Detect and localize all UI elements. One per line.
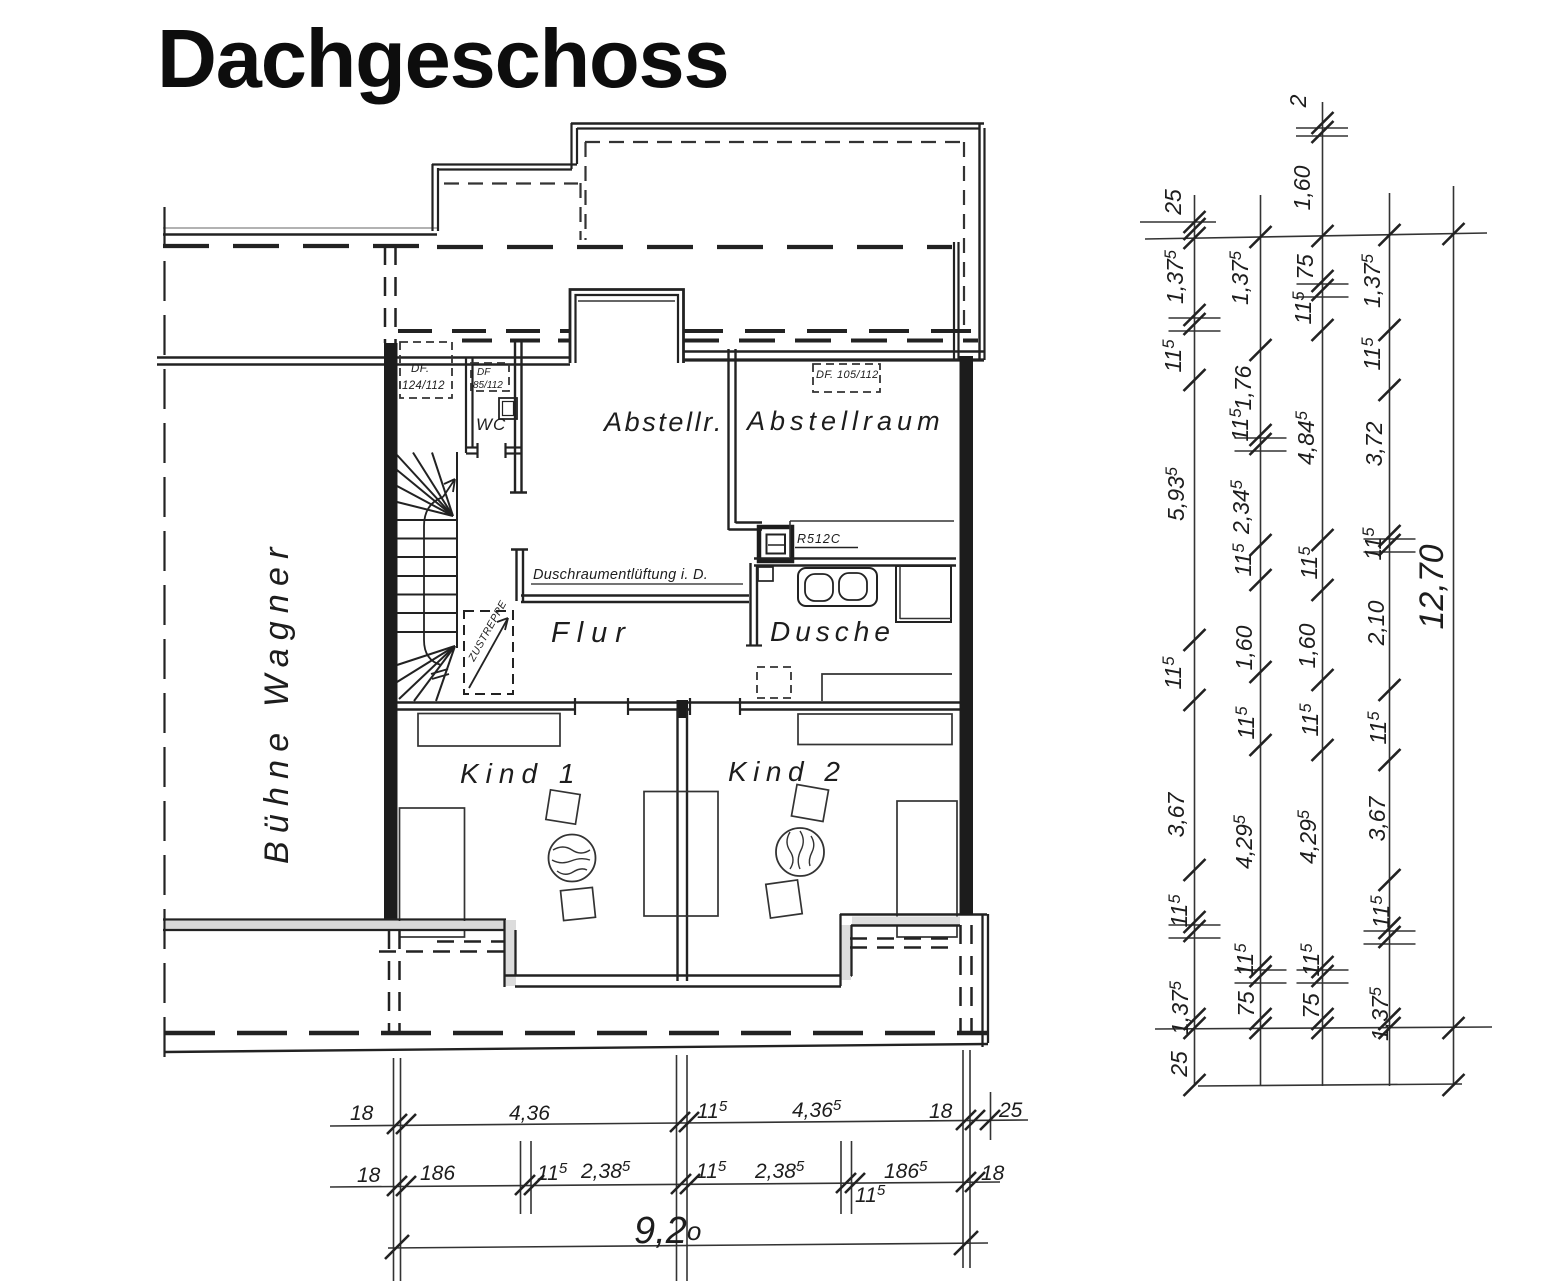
svg-text:Dachgeschoss: Dachgeschoss [157, 12, 728, 105]
svg-text:115: 115 [1165, 894, 1192, 928]
svg-text:115: 115 [537, 1160, 568, 1185]
svg-text:115: 115 [1358, 337, 1385, 371]
svg-text:75: 75 [1233, 991, 1259, 1017]
svg-text:2,385: 2,385 [754, 1158, 805, 1183]
svg-text:Abstellraum: Abstellraum [745, 406, 945, 436]
svg-text:18: 18 [350, 1102, 374, 1125]
svg-text:2,10: 2,10 [1363, 600, 1389, 646]
svg-text:4,845: 4,845 [1292, 410, 1319, 465]
svg-text:115: 115 [696, 1158, 727, 1183]
svg-text:25: 25 [998, 1099, 1023, 1122]
svg-text:3,67: 3,67 [1364, 795, 1390, 841]
svg-text:115: 115 [697, 1098, 728, 1123]
svg-text:WC: WC [476, 415, 506, 434]
svg-text:115: 115 [1226, 408, 1253, 442]
svg-text:1,375: 1,375 [1358, 253, 1385, 308]
svg-text:1,375: 1,375 [1226, 250, 1253, 305]
svg-text:1,375: 1,375 [1161, 249, 1188, 304]
svg-text:Kind 2: Kind 2 [728, 756, 846, 787]
svg-text:1,375: 1,375 [1166, 980, 1193, 1035]
svg-text:18: 18 [357, 1164, 381, 1187]
svg-text:2: 2 [1285, 94, 1311, 108]
svg-text:115: 115 [1364, 711, 1391, 745]
svg-text:4,36: 4,36 [509, 1102, 550, 1125]
svg-text:1865: 1865 [884, 1158, 928, 1183]
svg-text:4,365: 4,365 [792, 1097, 842, 1122]
svg-text:R512C: R512C [797, 532, 841, 546]
svg-text:1,60: 1,60 [1294, 623, 1320, 668]
svg-text:3,72: 3,72 [1361, 421, 1387, 466]
svg-text:2,345: 2,345 [1227, 479, 1254, 535]
svg-text:4,295: 4,295 [1294, 809, 1321, 864]
svg-text:115: 115 [855, 1182, 886, 1207]
svg-text:124/112: 124/112 [402, 380, 445, 392]
svg-text:4,295: 4,295 [1230, 814, 1257, 869]
svg-text:DF.: DF. [411, 363, 430, 375]
svg-text:115: 115 [1289, 291, 1316, 325]
svg-text:115: 115 [1297, 943, 1324, 977]
svg-text:Abstellr.: Abstellr. [602, 407, 724, 437]
svg-text:1,60: 1,60 [1231, 625, 1257, 670]
svg-text:186: 186 [420, 1162, 455, 1185]
svg-text:Duschraumentlüftung i. D.: Duschraumentlüftung i. D. [533, 567, 708, 583]
svg-text:18: 18 [981, 1162, 1005, 1185]
svg-text:1,60: 1,60 [1289, 165, 1315, 210]
svg-text:9,2o: 9,2o [634, 1210, 701, 1252]
svg-text:Bühne Wagner: Bühne Wagner [258, 539, 296, 864]
svg-text:5,935: 5,935 [1162, 466, 1189, 521]
svg-text:25: 25 [1160, 189, 1186, 216]
svg-text:115: 115 [1229, 543, 1256, 577]
svg-text:115: 115 [1232, 706, 1259, 740]
svg-text:1,76: 1,76 [1230, 365, 1256, 410]
svg-text:85/112: 85/112 [473, 380, 503, 391]
svg-text:115: 115 [1295, 546, 1322, 580]
svg-text:Flur: Flur [551, 617, 633, 649]
svg-text:75: 75 [1298, 993, 1324, 1019]
svg-text:115: 115 [1159, 339, 1186, 373]
svg-text:Kind 1: Kind 1 [460, 758, 581, 789]
svg-text:12,70: 12,70 [1413, 544, 1451, 629]
svg-text:Dusche: Dusche [770, 616, 895, 647]
svg-text:115: 115 [1359, 527, 1386, 561]
svg-text:2,385: 2,385 [580, 1158, 631, 1183]
svg-text:115: 115 [1159, 656, 1186, 690]
svg-text:DF. 105/112: DF. 105/112 [816, 369, 879, 381]
svg-text:115: 115 [1296, 703, 1323, 737]
svg-text:75: 75 [1292, 254, 1318, 280]
svg-text:25: 25 [1166, 1051, 1192, 1078]
svg-text:18: 18 [929, 1100, 953, 1123]
svg-text:DF: DF [477, 367, 491, 378]
svg-text:3,67: 3,67 [1163, 791, 1189, 837]
svg-text:115: 115 [1231, 943, 1258, 977]
